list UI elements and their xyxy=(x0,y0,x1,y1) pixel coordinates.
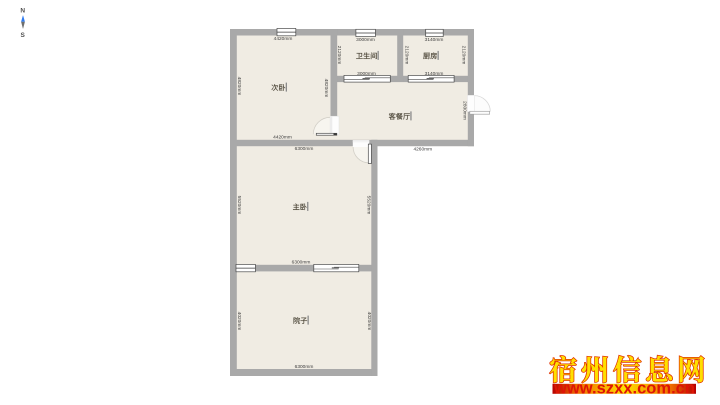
svg-text:S: S xyxy=(21,32,26,39)
svg-text:3000mm: 3000mm xyxy=(356,37,375,43)
svg-text:2800mm: 2800mm xyxy=(462,101,468,120)
svg-text:4260mm: 4260mm xyxy=(413,146,432,152)
svg-text:6300mm: 6300mm xyxy=(292,259,311,265)
svg-text:6300mm: 6300mm xyxy=(295,146,314,152)
svg-text:www.szxx.com.cn: www.szxx.com.cn xyxy=(553,379,695,397)
svg-text:2120mm: 2120mm xyxy=(460,46,466,65)
svg-text:4420mm: 4420mm xyxy=(273,134,292,140)
svg-text:6300mm: 6300mm xyxy=(295,364,314,370)
svg-text:3140mm: 3140mm xyxy=(425,71,444,77)
svg-text:2120mm: 2120mm xyxy=(336,46,342,65)
svg-text:4820mm: 4820mm xyxy=(236,77,242,96)
svg-text:3000mm: 3000mm xyxy=(357,71,376,77)
svg-text:5520mm: 5520mm xyxy=(366,196,372,215)
svg-text:N: N xyxy=(20,7,25,14)
svg-text:4020mm: 4020mm xyxy=(236,312,242,331)
svg-text:5520mm: 5520mm xyxy=(236,196,242,215)
svg-text:3140mm: 3140mm xyxy=(425,37,444,43)
svg-text:4420mm: 4420mm xyxy=(274,36,293,42)
svg-text:4020mm: 4020mm xyxy=(366,312,372,331)
svg-text:2120mm: 2120mm xyxy=(403,46,409,65)
svg-text:4820mm: 4820mm xyxy=(323,79,329,98)
